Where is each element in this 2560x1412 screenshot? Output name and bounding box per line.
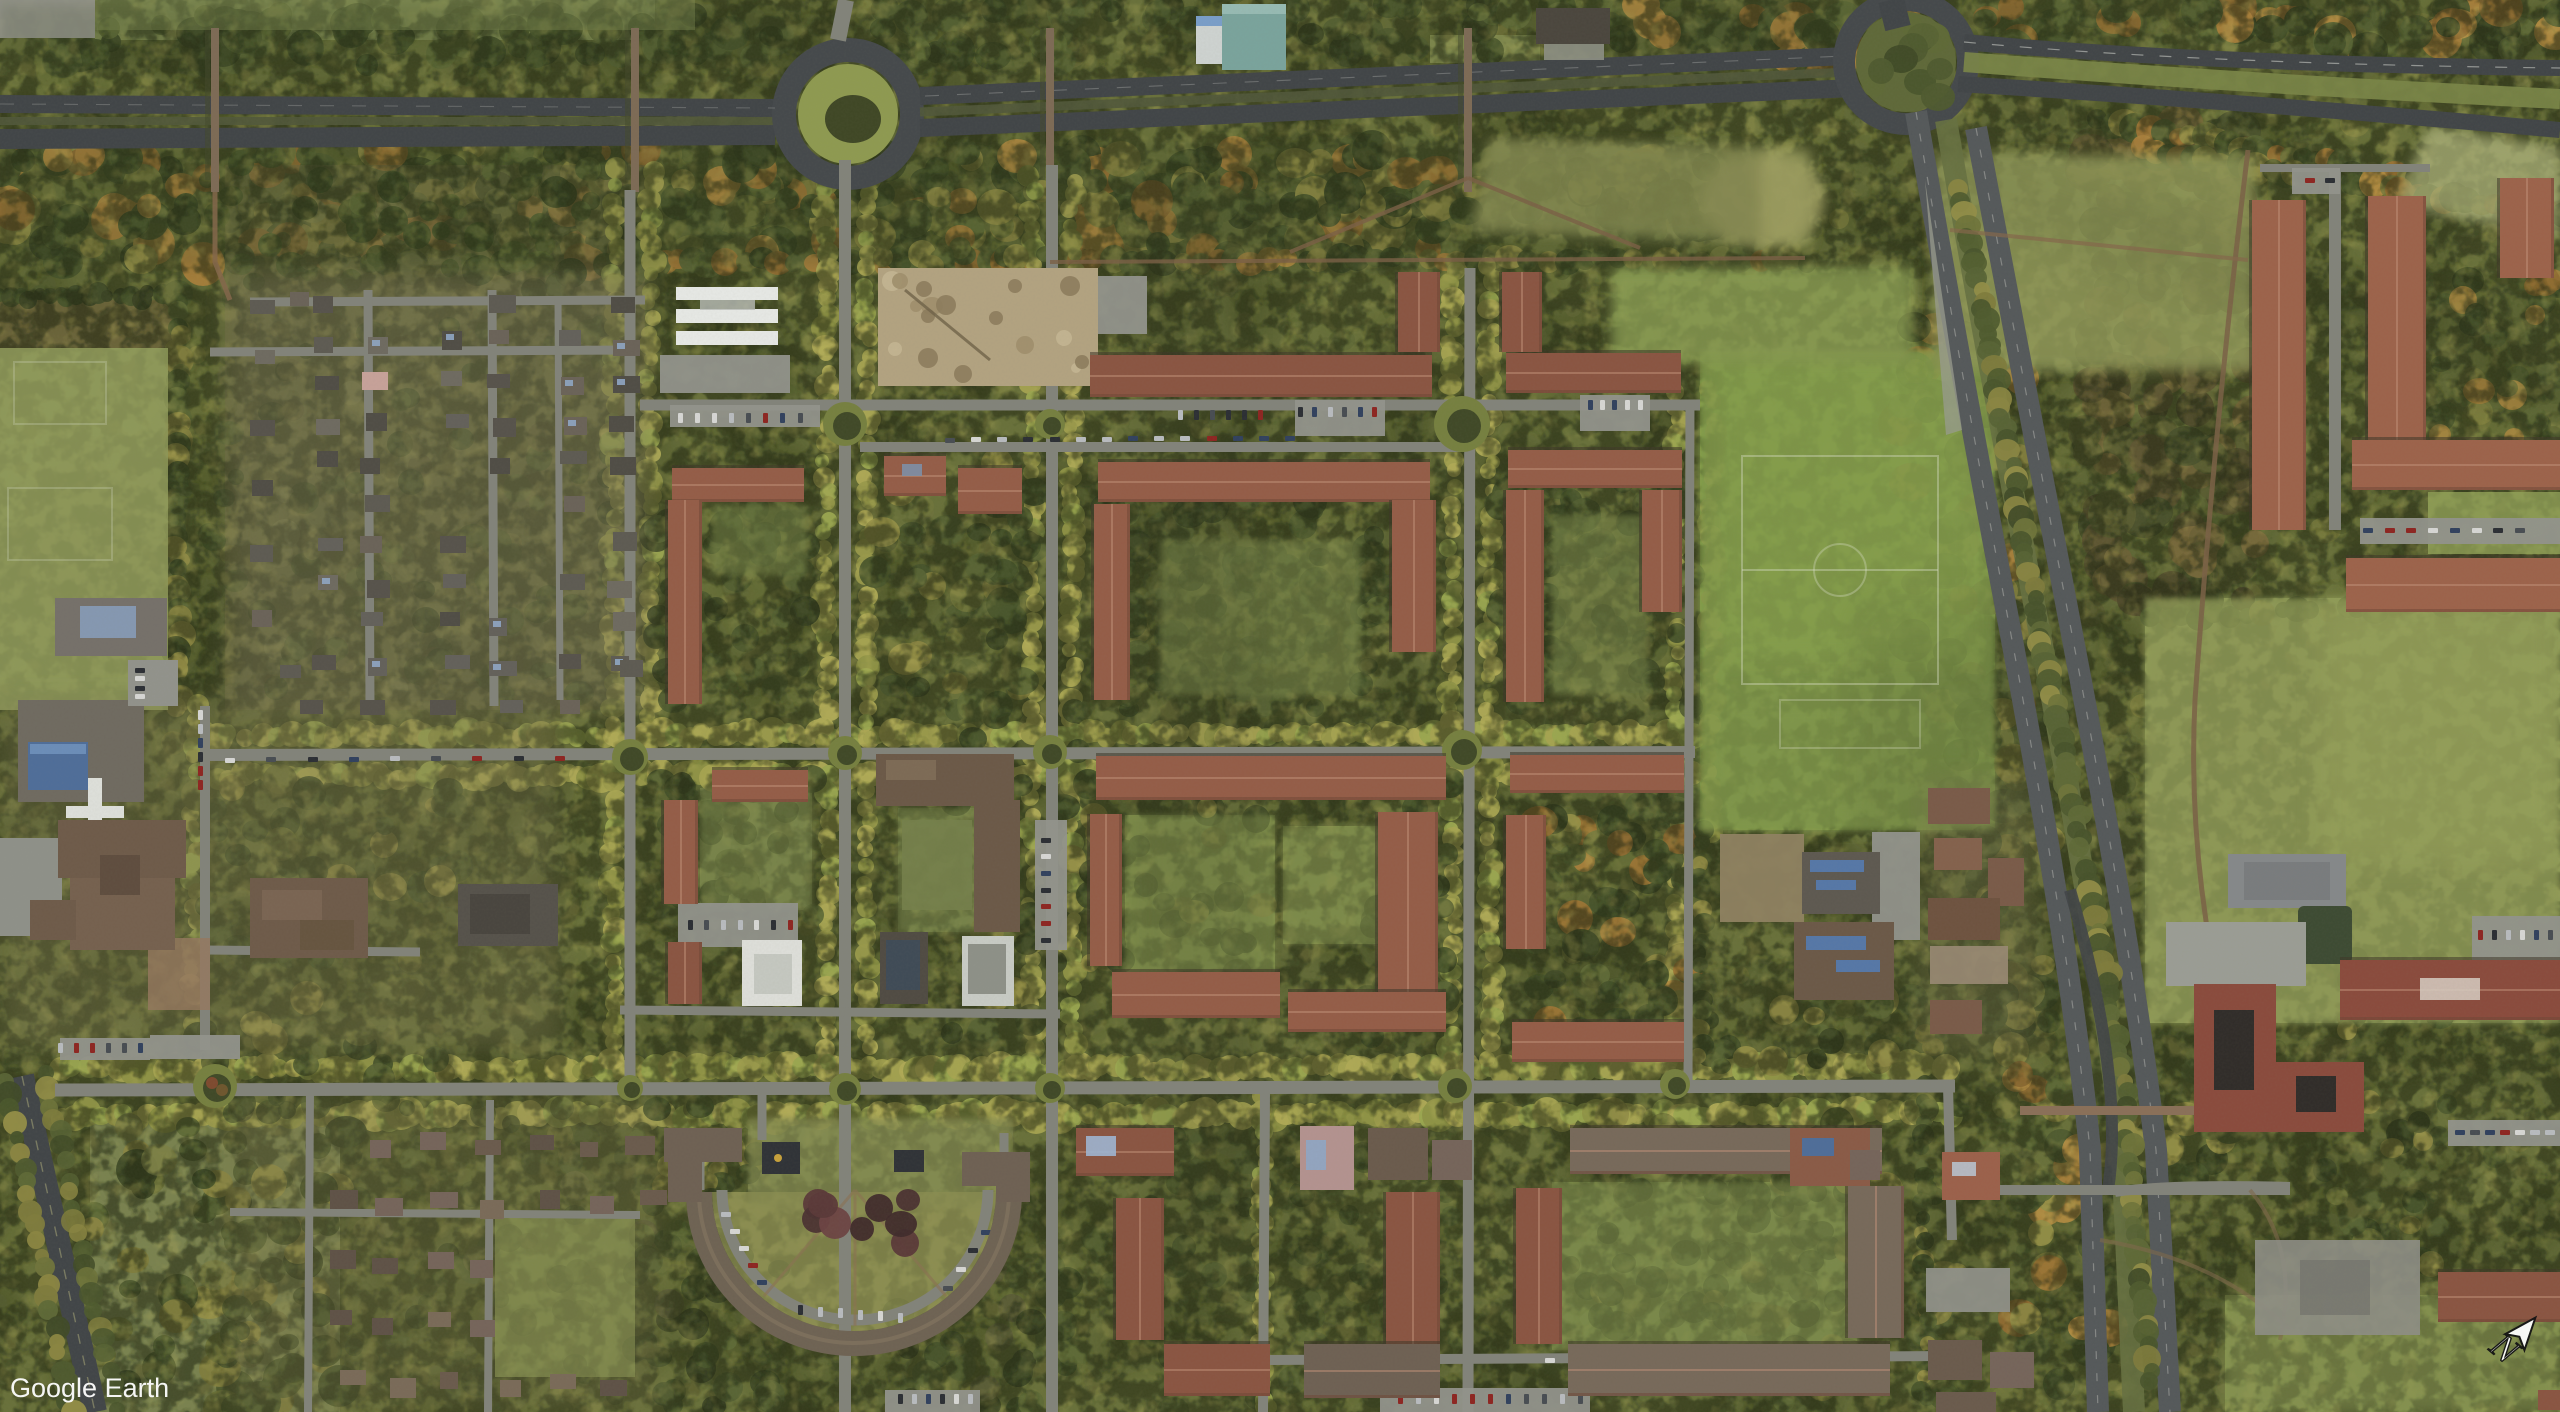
svg-text:Google Earth: Google Earth [10, 1373, 169, 1403]
